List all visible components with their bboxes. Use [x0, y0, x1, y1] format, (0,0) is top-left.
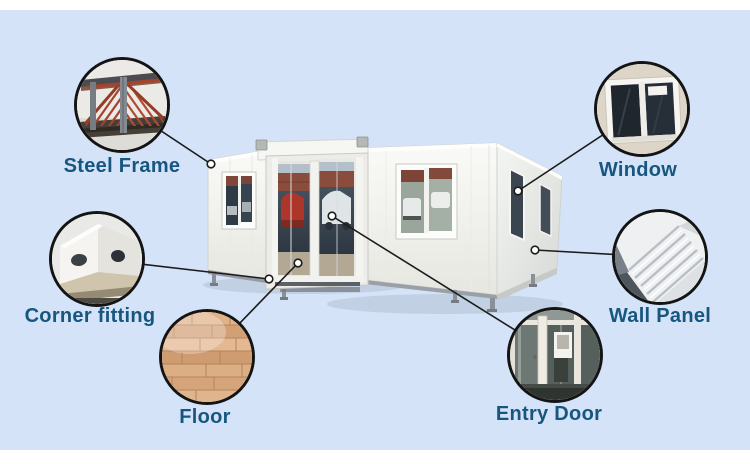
container-house-photo [190, 128, 590, 338]
callout-circle-wall-panel [612, 209, 708, 305]
callout-circle-corner-fitting [49, 211, 145, 307]
callout-label-steel-frame: Steel Frame [37, 155, 207, 178]
wall-panel-photo [615, 212, 705, 302]
callout-circle-window [594, 61, 690, 157]
steel-frame-photo [77, 60, 167, 150]
callout-circle-steel-frame [74, 57, 170, 153]
callout-label-window: Window [553, 159, 723, 182]
product-parts-diagram: Steel Frame Window Corner fitting Wall P… [0, 0, 750, 464]
callout-label-entry-door: Entry Door [464, 403, 634, 426]
house-center-glass-doors [256, 137, 368, 292]
callout-label-wall-panel: Wall Panel [575, 305, 745, 328]
callout-label-floor: Floor [120, 406, 290, 429]
floor-photo [162, 312, 252, 402]
callout-label-corner-fitting: Corner fitting [5, 305, 175, 328]
corner-fitting-photo [52, 214, 142, 304]
house-left-wing [208, 149, 273, 284]
window-photo [597, 64, 687, 154]
